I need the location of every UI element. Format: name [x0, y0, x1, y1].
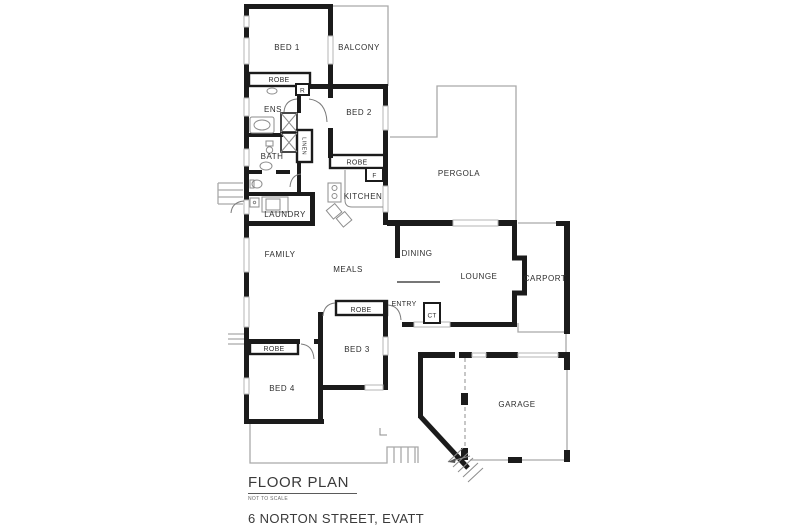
room-label-robe-bed4: ROBE: [263, 346, 284, 353]
room-label-bed1: BED 1: [274, 43, 300, 52]
bath-shower: [281, 133, 297, 152]
bed4-door-arc: [301, 344, 314, 359]
ens-shower: [281, 113, 297, 132]
plan-address: 6 NORTON STREET, EVATT: [248, 511, 428, 527]
room-label-meals: MEALS: [333, 265, 363, 274]
room-label-pergola: PERGOLA: [438, 169, 480, 178]
room-label-lounge: LOUNGE: [461, 272, 498, 281]
room-label-bed4: BED 4: [269, 384, 295, 393]
room-label-linen: LINEN: [301, 137, 307, 155]
plan-scale-note: NOT TO SCALE: [248, 496, 428, 502]
room-label-ens: ENS: [264, 105, 282, 114]
room-label-laundry: LAUNDRY: [264, 210, 306, 219]
ens-basin: [267, 88, 277, 94]
patio-outline: [250, 424, 418, 463]
ens-door-arc: [284, 99, 297, 112]
pergola-outline: [390, 86, 516, 222]
plan-footer: FLOOR PLAN NOT TO SCALE 6 NORTON STREET,…: [248, 474, 428, 527]
room-label-bed3: BED 3: [344, 345, 370, 354]
doors: [231, 99, 401, 359]
room-label-robe-bed3: ROBE: [350, 307, 371, 314]
bed3-door-arc: [323, 303, 335, 316]
room-label-robe-bed2: ROBE: [346, 160, 367, 167]
laundry-door-arc: [231, 201, 244, 213]
bed2-door-arc: [309, 99, 327, 122]
floor-plan-drawing: BED 1 BALCONY ROBE R ENS BED 2 BATH LINE…: [0, 0, 790, 527]
room-label-dining: DINING: [402, 249, 433, 258]
room-label-recess: R: [300, 88, 305, 95]
side-steps: [218, 183, 243, 204]
room-label-robe-bed1: ROBE: [268, 77, 289, 84]
corner-mark: [380, 428, 387, 435]
floor-plan-canvas: BED 1 BALCONY ROBE R ENS BED 2 BATH LINE…: [0, 0, 790, 527]
patio-steps: [394, 447, 415, 463]
bath-basin: [260, 162, 272, 170]
room-label-entry: ENTRY: [391, 301, 416, 308]
room-label-bath: BATH: [261, 152, 284, 161]
kitchen-stove: [326, 204, 351, 227]
family-side-steps: [228, 334, 244, 344]
room-label-bed2: BED 2: [346, 108, 372, 117]
room-label-garage: GARAGE: [498, 400, 535, 409]
room-label-carport: CARPORT: [524, 274, 566, 283]
ens-toilet: [266, 141, 273, 146]
laundry-tub: [250, 198, 259, 207]
room-label-kitchen: KITCHEN: [344, 192, 383, 201]
room-label-balcony: BALCONY: [338, 43, 380, 52]
plan-title: FLOOR PLAN: [248, 474, 357, 494]
room-label-family: FAMILY: [265, 250, 296, 259]
room-label-ct: CT: [427, 313, 436, 320]
room-label-fridge: F: [372, 173, 376, 180]
